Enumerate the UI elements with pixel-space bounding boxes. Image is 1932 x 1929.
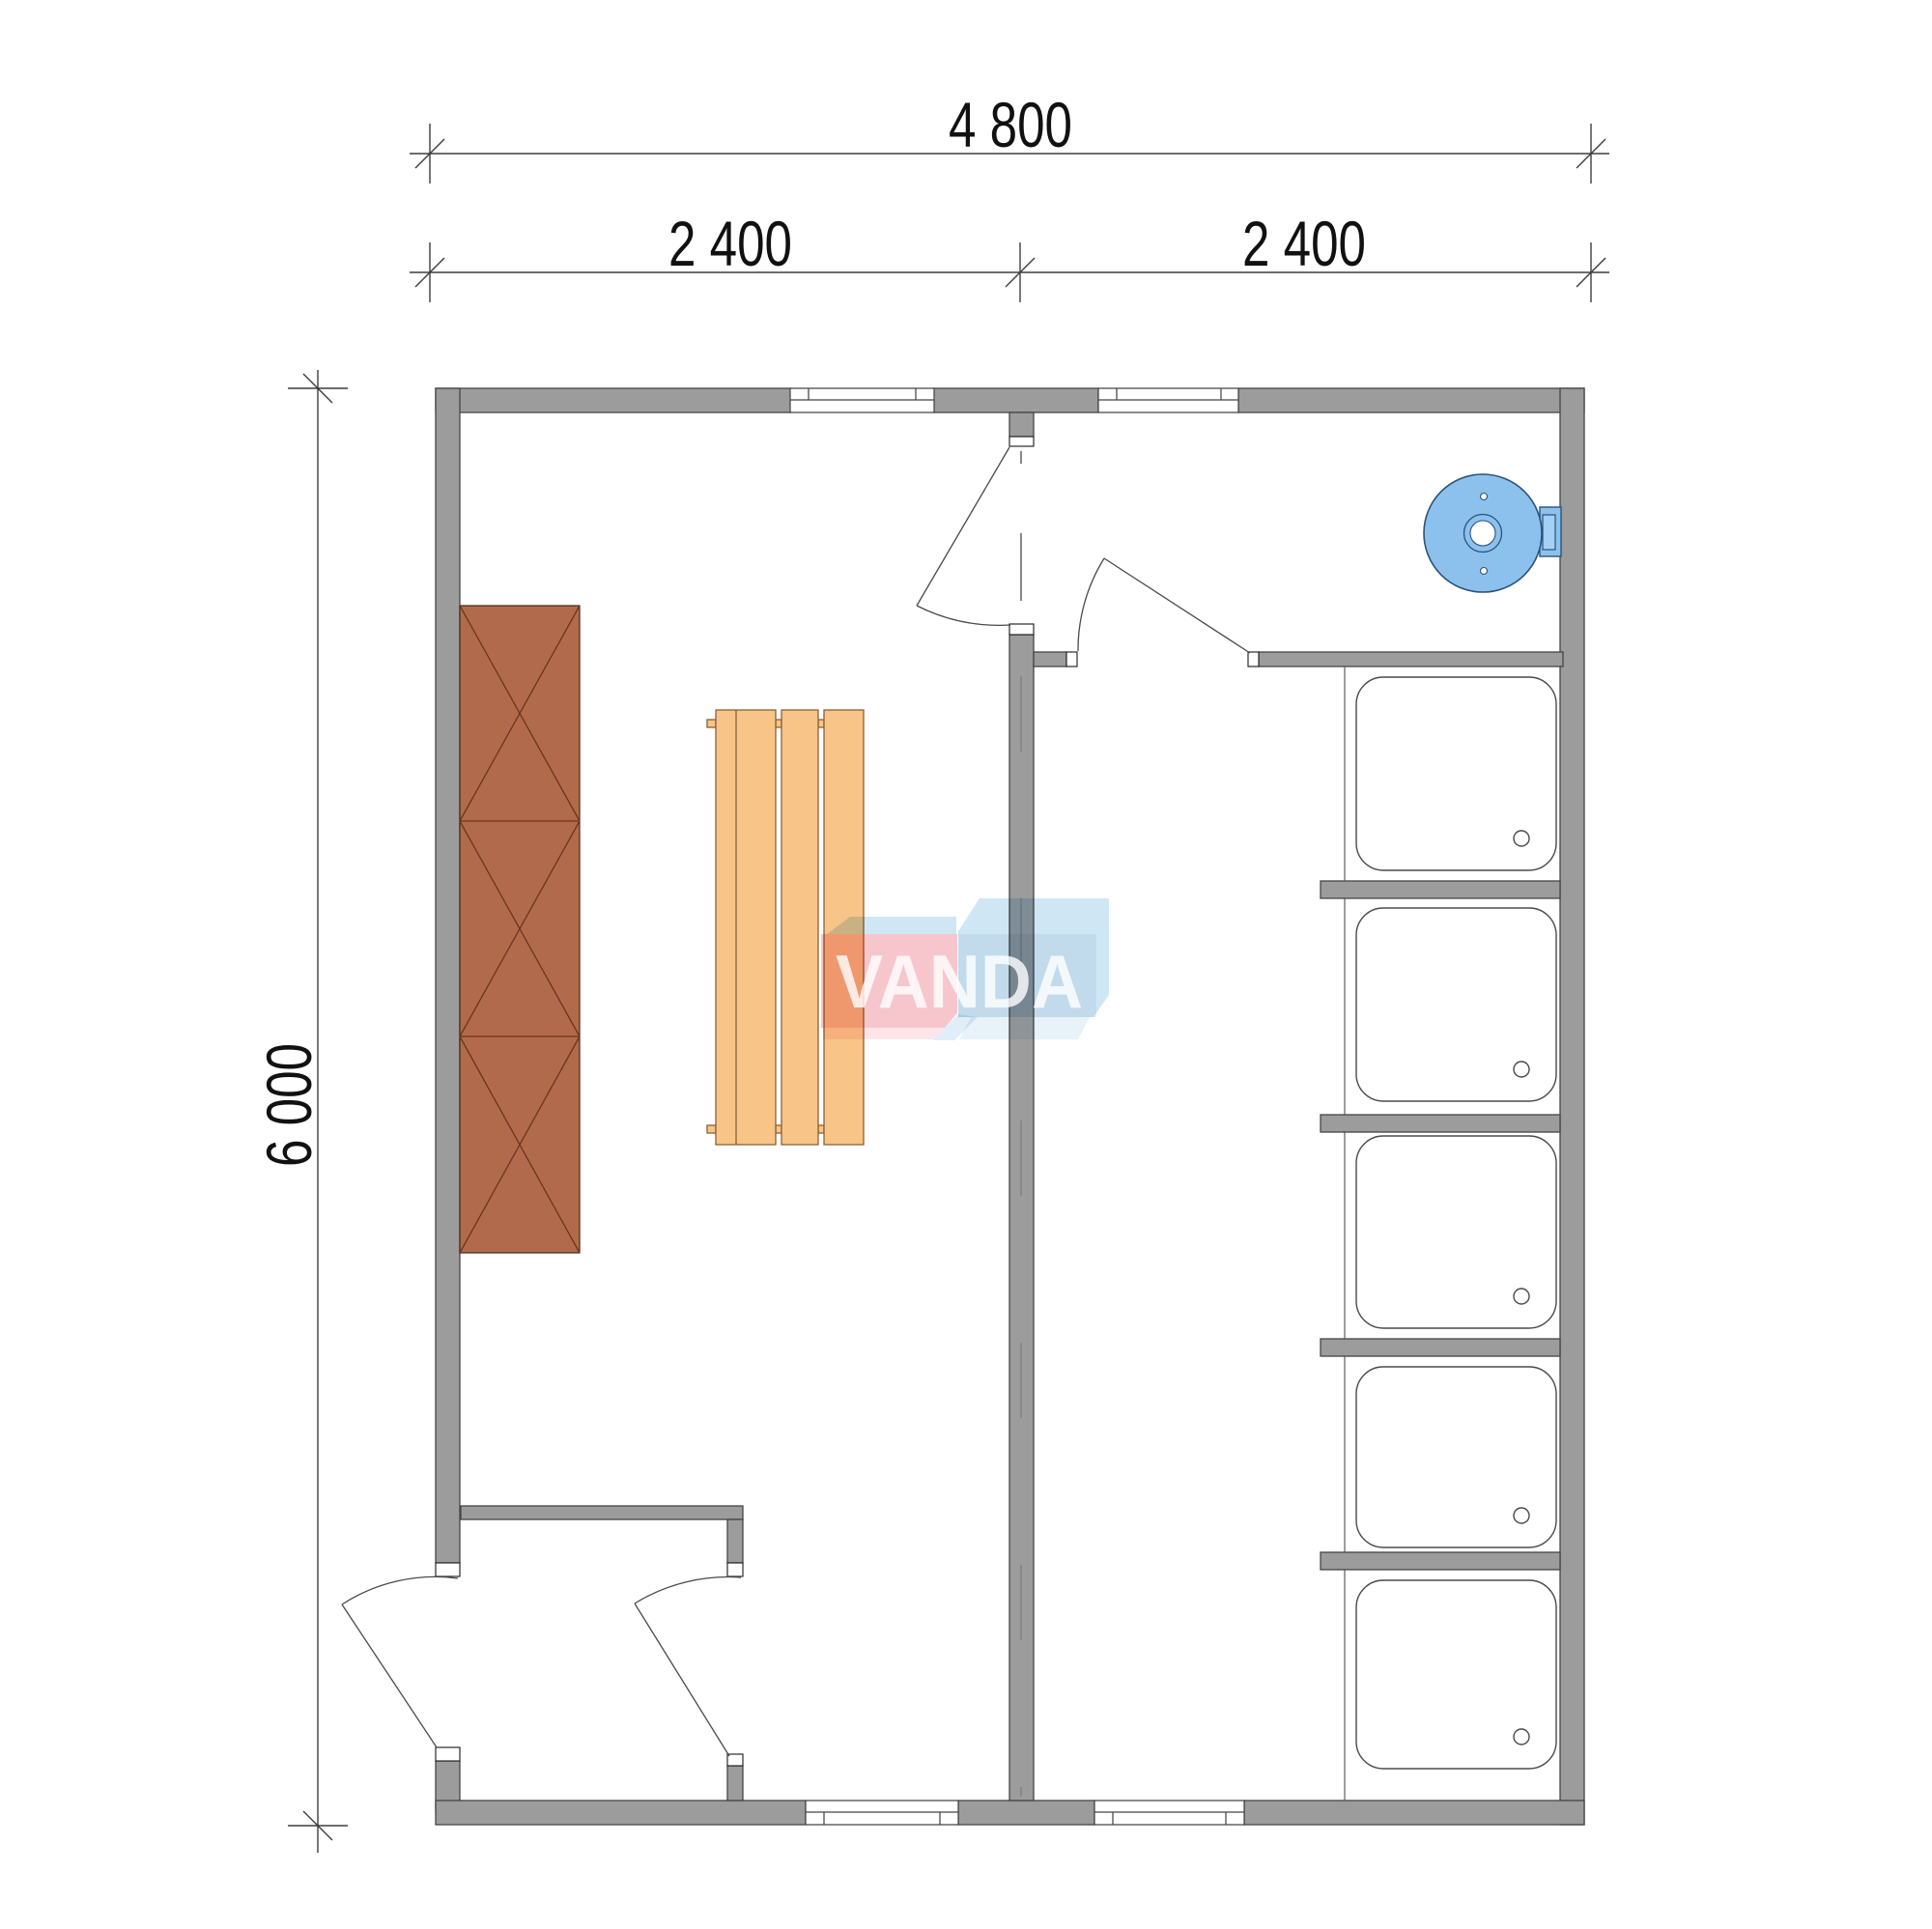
svg-text:2 400: 2 400 <box>668 208 792 279</box>
svg-text:6 000: 6 000 <box>253 1043 325 1167</box>
svg-text:VANDA: VANDA <box>836 939 1083 1024</box>
svg-text:2 400: 2 400 <box>1242 208 1366 279</box>
svg-text:4 800: 4 800 <box>949 89 1072 160</box>
